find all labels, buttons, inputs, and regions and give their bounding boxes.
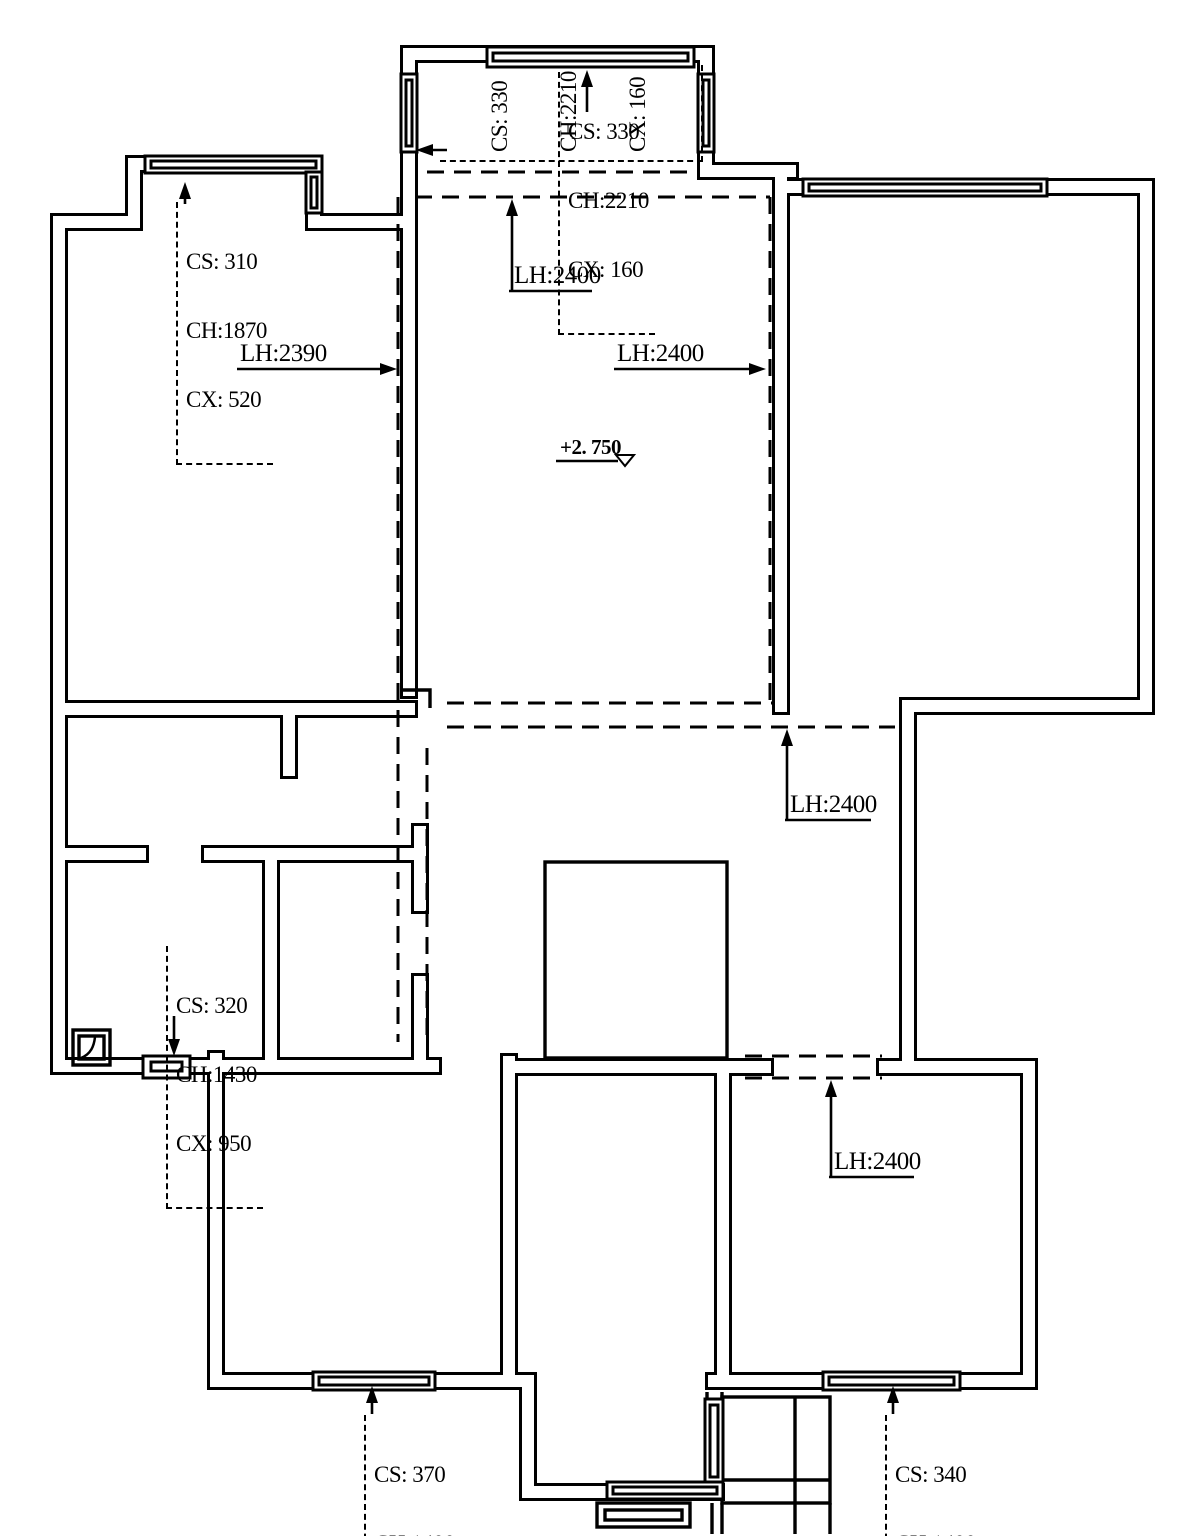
window-label-bay: CS: 310 CH:1870 CX: 520 [176, 202, 273, 465]
floor-plan-canvas: CS: 330 CH:2210 CX: 160 CS: 330 CH:2210 … [0, 0, 1200, 1536]
window-balcony-l-horizontal [607, 1482, 723, 1499]
height-label-left: LH:2390 [240, 341, 327, 366]
window-label-bathroom: CS: 320 CH:1430 CX: 950 [166, 946, 263, 1209]
height-label-top: LH:2400 [514, 263, 601, 288]
bottom-window-box [597, 1503, 690, 1527]
window-balcony-l-vertical [705, 1399, 723, 1483]
window-balcony-left [401, 74, 417, 152]
window-bay-horizontal [145, 156, 322, 173]
stair-shaft [545, 862, 727, 1058]
window-bottom-right [823, 1372, 960, 1390]
height-label-center: LH:2400 [617, 341, 704, 366]
window-label-balcony-top: CS: 330 CH:2210 CX: 160 [558, 72, 655, 335]
duct-cells [722, 1397, 830, 1503]
window-label-bottom-right: CS: 340 CH:1400 CX: 960 [885, 1415, 982, 1536]
window-balcony-top [487, 47, 694, 67]
window-label-bottom-left: CS: 370 CH:1400 CX: 930 [364, 1415, 461, 1536]
level-marker: +2. 750 [560, 437, 621, 458]
height-label-bottom-right: LH:2400 [834, 1149, 921, 1174]
window-right-room [803, 179, 1047, 196]
window-bay-vertical [306, 172, 322, 213]
window-bottom-left [313, 1372, 435, 1390]
height-label-mid-right: LH:2400 [790, 792, 877, 817]
